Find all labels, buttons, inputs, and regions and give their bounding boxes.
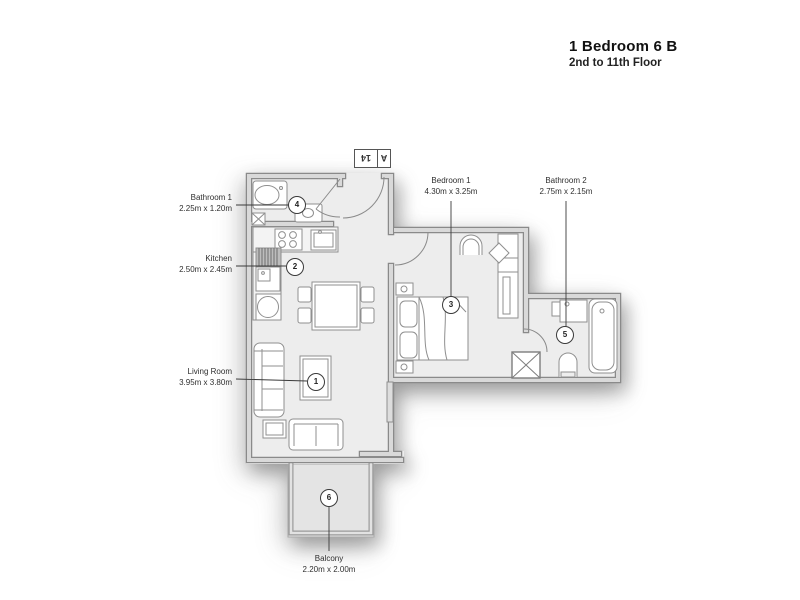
- room-name: Bathroom 1: [179, 192, 232, 203]
- room-name: Balcony: [279, 553, 379, 564]
- room-dims: 2.20m x 2.00m: [279, 564, 379, 575]
- marker-kitchen: 2: [286, 258, 304, 276]
- marker-bedroom1: 3: [442, 296, 460, 314]
- marker-balcony: 6: [320, 489, 338, 507]
- unit-building: A: [377, 150, 390, 167]
- leader-lines: [0, 0, 800, 600]
- room-dims: 2.50m x 2.45m: [179, 264, 232, 275]
- label-bathroom2: Bathroom 2 2.75m x 2.15m: [516, 175, 616, 197]
- title-block: 1 Bedroom 6 B 2nd to 11th Floor: [569, 38, 677, 69]
- room-dims: 4.30m x 3.25m: [401, 186, 501, 197]
- plan-subtitle: 2nd to 11th Floor: [569, 57, 677, 69]
- room-name: Bedroom 1: [401, 175, 501, 186]
- label-bathroom1: Bathroom 1 2.25m x 1.20m: [179, 192, 232, 214]
- room-name: Living Room: [179, 366, 232, 377]
- label-living-room: Living Room 3.95m x 3.80m: [179, 366, 232, 388]
- marker-bathroom2: 5: [556, 326, 574, 344]
- unit-number-tag: A 14: [354, 149, 391, 168]
- room-dims: 2.25m x 1.20m: [179, 203, 232, 214]
- room-dims: 2.75m x 2.15m: [516, 186, 616, 197]
- room-name: Bathroom 2: [516, 175, 616, 186]
- label-bedroom1: Bedroom 1 4.30m x 3.25m: [401, 175, 501, 197]
- leader-living: [236, 379, 307, 381]
- marker-living-room: 1: [307, 373, 325, 391]
- label-kitchen: Kitchen 2.50m x 2.45m: [179, 253, 232, 275]
- label-balcony: Balcony 2.20m x 2.00m: [279, 553, 379, 575]
- room-dims: 3.95m x 3.80m: [179, 377, 232, 388]
- unit-number: 14: [355, 150, 377, 167]
- floorplan-page: 1 Bedroom 6 B 2nd to 11th Floor A 14 Bat…: [0, 0, 800, 600]
- marker-bathroom1: 4: [288, 196, 306, 214]
- plan-title: 1 Bedroom 6 B: [569, 38, 677, 55]
- room-name: Kitchen: [179, 253, 232, 264]
